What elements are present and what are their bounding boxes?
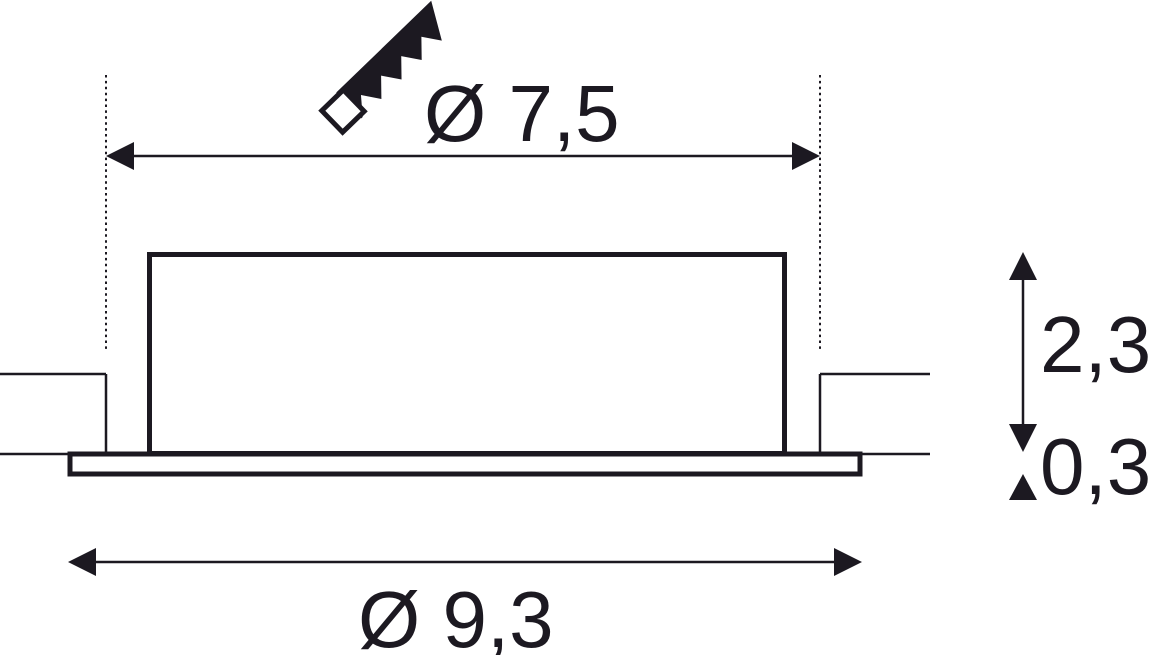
ceiling-section-left bbox=[0, 374, 106, 454]
arrowhead-up-icon bbox=[1009, 252, 1037, 280]
housing-body bbox=[150, 255, 785, 454]
dimension-overall-diameter: Ø 9,3 bbox=[68, 548, 862, 655]
arrowhead-right-icon bbox=[792, 142, 820, 170]
arrowhead-left-icon bbox=[68, 548, 96, 576]
ceiling-section-right bbox=[820, 374, 930, 454]
arrowhead-right-icon bbox=[834, 548, 862, 576]
dimension-drawing: Ø 7,5 Ø 9,3 2,3 0,3 bbox=[0, 0, 1150, 655]
arrowhead-left-icon bbox=[106, 142, 134, 170]
recess-height-label: 2,3 bbox=[1040, 300, 1150, 389]
rim-thickness-label: 0,3 bbox=[1040, 422, 1150, 511]
dimension-cutout-diameter: Ø 7,5 bbox=[106, 69, 820, 170]
trim-plate bbox=[70, 454, 860, 474]
arrowhead-down-icon bbox=[1009, 424, 1037, 452]
cutout-diameter-label: Ø 7,5 bbox=[424, 69, 620, 158]
overall-diameter-label: Ø 9,3 bbox=[358, 575, 554, 655]
drawing-canvas: Ø 7,5 Ø 9,3 2,3 0,3 bbox=[0, 0, 1150, 655]
arrowhead-up-icon bbox=[1009, 474, 1037, 500]
